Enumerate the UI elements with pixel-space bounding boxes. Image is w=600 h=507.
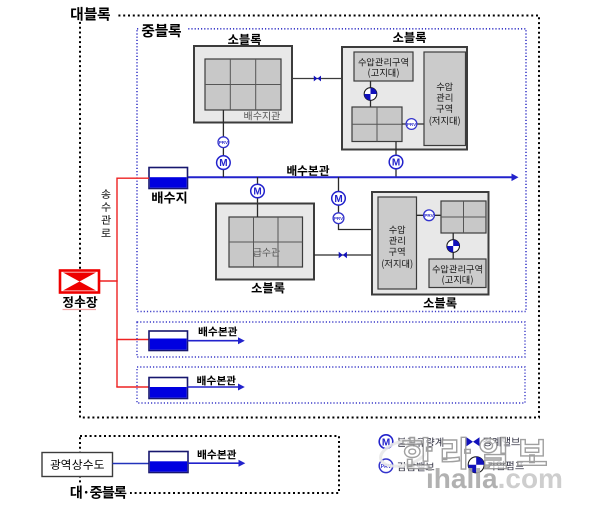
- svg-text:M: M: [334, 194, 342, 205]
- svg-text:배수본관: 배수본관: [286, 162, 330, 179]
- svg-text:(저지대): (저지대): [381, 256, 413, 270]
- svg-text:PRV: PRV: [334, 216, 344, 221]
- svg-text:PRV: PRV: [407, 122, 417, 127]
- svg-text:중블록: 중블록: [141, 20, 182, 41]
- svg-text:배수지관: 배수지관: [244, 108, 282, 123]
- svg-text:(고지대): (고지대): [442, 272, 474, 286]
- svg-text:PRV: PRV: [219, 140, 229, 145]
- svg-text:정수장: 정수장: [62, 292, 98, 311]
- svg-text:대블록: 대블록: [70, 4, 111, 25]
- svg-text:배수본관: 배수본관: [198, 323, 238, 339]
- svg-text:배수본관: 배수본관: [197, 447, 237, 463]
- svg-text:(고지대): (고지대): [368, 65, 400, 79]
- svg-text:소블록: 소블록: [251, 279, 285, 297]
- svg-text:배수본관: 배수본관: [197, 373, 237, 389]
- svg-text:M: M: [253, 187, 261, 198]
- svg-text:(저지대): (저지대): [429, 113, 461, 127]
- svg-text:소블록: 소블록: [393, 28, 427, 46]
- svg-text:배수지: 배수지: [151, 188, 187, 207]
- svg-text:PRV: PRV: [424, 213, 434, 218]
- svg-text:소블록: 소블록: [423, 294, 457, 312]
- svg-text:광역상수도: 광역상수도: [50, 456, 104, 473]
- svg-text:M: M: [219, 158, 227, 169]
- svg-text:M: M: [392, 158, 400, 169]
- svg-text:급수관: 급수관: [253, 244, 281, 259]
- svg-text:ihalla.com: ihalla.com: [426, 463, 563, 494]
- svg-text:대·중블록: 대·중블록: [70, 483, 127, 503]
- svg-text:로: 로: [101, 225, 111, 241]
